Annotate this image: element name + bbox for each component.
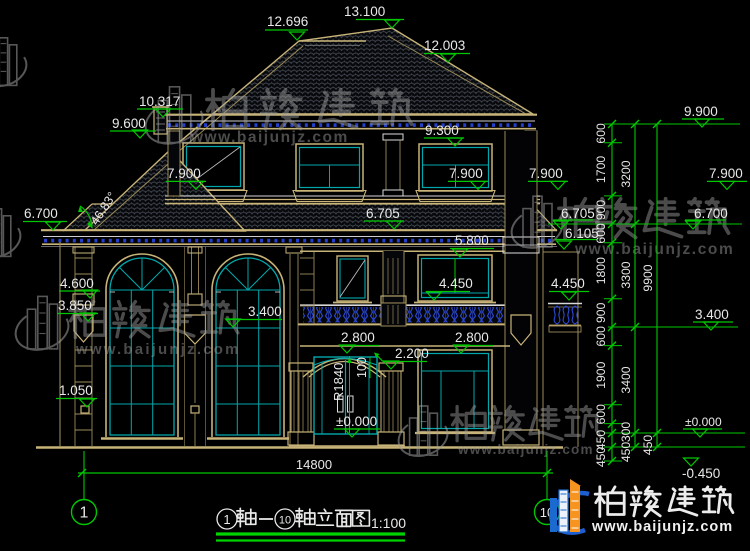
svg-text:450: 450 xyxy=(594,447,608,468)
svg-text:7.900: 7.900 xyxy=(449,166,483,181)
svg-text:10.317: 10.317 xyxy=(139,94,180,109)
svg-text:www.baijunjz.com: www.baijunjz.com xyxy=(457,442,594,457)
svg-text:13.100: 13.100 xyxy=(344,4,385,19)
svg-text:www.baijunjz.com: www.baijunjz.com xyxy=(75,341,241,358)
svg-text:14800: 14800 xyxy=(296,457,332,472)
svg-text:4.450: 4.450 xyxy=(439,276,473,291)
svg-text:2.200: 2.200 xyxy=(395,346,429,361)
svg-text:7.900: 7.900 xyxy=(529,166,563,181)
svg-text:1: 1 xyxy=(223,512,230,527)
svg-text:1700: 1700 xyxy=(594,156,608,183)
svg-text:4.600: 4.600 xyxy=(60,276,94,291)
svg-text:3.400: 3.400 xyxy=(248,304,282,319)
svg-text:2.800: 2.800 xyxy=(341,330,375,345)
svg-text:12.696: 12.696 xyxy=(267,14,308,29)
svg-text:6.705: 6.705 xyxy=(366,206,400,221)
svg-text:±0.000: ±0.000 xyxy=(336,414,377,429)
svg-text:4.450: 4.450 xyxy=(551,276,585,291)
svg-text:5.800: 5.800 xyxy=(455,233,489,248)
svg-text:600: 600 xyxy=(594,404,608,425)
svg-text:6.700: 6.700 xyxy=(694,206,728,221)
svg-text:6.705: 6.705 xyxy=(561,206,595,221)
svg-text:3200: 3200 xyxy=(619,160,633,187)
svg-text:-0.450: -0.450 xyxy=(682,466,720,481)
svg-text:100: 100 xyxy=(355,357,369,378)
svg-text:1.050: 1.050 xyxy=(59,383,93,398)
svg-text:±0.000: ±0.000 xyxy=(685,415,722,429)
svg-text:10: 10 xyxy=(279,515,291,527)
svg-text:600: 600 xyxy=(594,123,608,144)
svg-text:9.300: 9.300 xyxy=(425,123,459,138)
svg-text:600: 600 xyxy=(594,223,608,244)
svg-text:600: 600 xyxy=(594,326,608,347)
svg-text:1: 1 xyxy=(80,505,89,522)
svg-text:9.600: 9.600 xyxy=(112,116,146,131)
svg-text:1900: 1900 xyxy=(594,361,608,388)
svg-text:300: 300 xyxy=(619,422,633,443)
svg-text:1:100: 1:100 xyxy=(371,515,406,531)
svg-text:www.baijunjz.com: www.baijunjz.com xyxy=(591,519,733,535)
svg-text:R1840: R1840 xyxy=(331,363,346,401)
svg-text:900: 900 xyxy=(594,302,608,323)
svg-text:7.900: 7.900 xyxy=(167,166,201,181)
svg-text:3.850: 3.850 xyxy=(58,298,92,313)
svg-text:7.900: 7.900 xyxy=(709,166,743,181)
svg-text:1800: 1800 xyxy=(594,257,608,284)
svg-text:9900: 9900 xyxy=(641,264,655,291)
svg-text:2.800: 2.800 xyxy=(455,330,489,345)
svg-text:www.baijunjz.com: www.baijunjz.com xyxy=(190,129,349,146)
svg-text:12.003: 12.003 xyxy=(424,38,465,53)
svg-text:3400: 3400 xyxy=(619,366,633,393)
svg-text:3.400: 3.400 xyxy=(695,307,729,322)
svg-text:3300: 3300 xyxy=(619,261,633,288)
svg-text:6.700: 6.700 xyxy=(24,206,58,221)
svg-text:450: 450 xyxy=(619,442,633,463)
svg-text:9.900: 9.900 xyxy=(684,104,718,119)
svg-text:450: 450 xyxy=(641,435,655,456)
svg-text:900: 900 xyxy=(594,200,608,221)
